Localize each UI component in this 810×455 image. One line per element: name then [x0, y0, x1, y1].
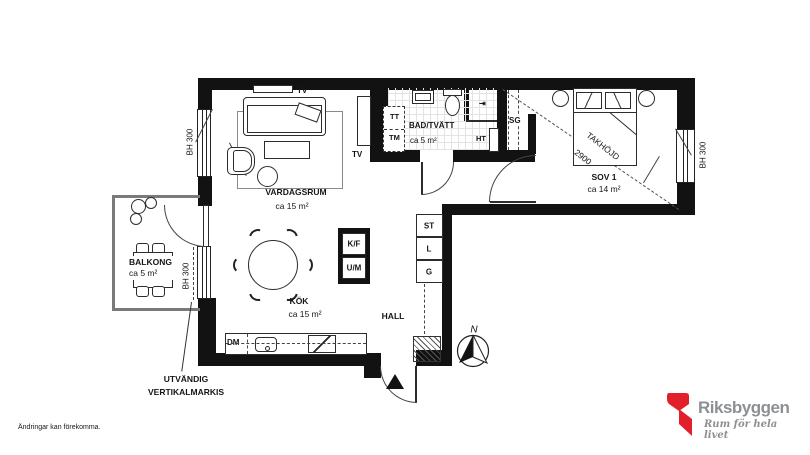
kf-label: K/F — [348, 240, 361, 249]
side-table-round — [257, 166, 278, 187]
bh-label-kitchen: BH 300 — [182, 262, 191, 291]
markis-note-line2: VERTIKALMARKIS — [132, 386, 240, 399]
room-name-vardagsrum: VARDAGSRUM — [265, 187, 326, 197]
bed-pillow — [605, 92, 631, 109]
bedside-stool — [638, 90, 655, 107]
st-label: ST — [424, 222, 434, 231]
balcony-plant-pot — [130, 213, 142, 225]
bh-label-living: BH 300 — [186, 129, 195, 156]
markis-leader-line — [181, 302, 192, 371]
sg-label: SG — [509, 116, 521, 125]
shower-drain-arrow: ⇥ — [479, 99, 486, 108]
wall-bedroom-right-bottom — [677, 183, 695, 215]
dining-chair — [295, 256, 313, 274]
room-area-balkong: ca 5 m² — [129, 268, 172, 279]
counter-divider — [247, 334, 248, 354]
room-name-bad: BAD/TVÄTT — [409, 121, 454, 130]
room-name-balkong: BALKONG — [129, 257, 172, 268]
tt-label: TT — [390, 112, 399, 121]
counter-centerline — [226, 343, 366, 344]
g-label: G — [426, 268, 432, 277]
tv-bench-right — [357, 96, 371, 146]
stove — [308, 335, 336, 353]
hall-radiator — [413, 336, 441, 362]
bedroom-window — [676, 129, 695, 183]
um-label: U/M — [347, 264, 362, 273]
tv-bench-top — [253, 85, 293, 93]
balcony-chair — [136, 286, 149, 297]
toilet-bowl — [445, 95, 460, 116]
wall-bedroom-bottom — [442, 204, 695, 215]
room-area-bad: ca 5 m² — [410, 136, 437, 145]
bed-blanket-line — [573, 112, 637, 113]
room-name-kok: KÖK — [290, 296, 309, 306]
wall-bedroom-right-top — [677, 78, 695, 129]
balcony-plant-pot — [145, 197, 157, 209]
living-room-window — [197, 109, 211, 177]
bathroom-door-swing — [421, 162, 454, 195]
l-label: L — [427, 245, 432, 254]
room-area-sov: ca 14 m² — [587, 184, 620, 194]
towel-radiator — [489, 128, 499, 152]
bathroom-sink — [412, 90, 434, 104]
riksbyggen-logo-mark — [666, 392, 696, 440]
wall-left-mid — [198, 176, 212, 206]
bh-label-bedroom: BH 300 — [699, 142, 708, 169]
hall-centerline — [424, 284, 425, 334]
shower-edge — [466, 120, 497, 122]
riksbyggen-logo-tagline: Rum för hela livet — [704, 419, 802, 441]
coffee-table — [264, 141, 310, 159]
disclaimer-text: Ändringar kan förekomma. — [18, 424, 100, 431]
markis-dashed-line — [193, 247, 194, 300]
tm-label: TM — [389, 133, 400, 142]
markis-note-line1: UTVÄNDIG — [132, 373, 240, 386]
compass-icon — [449, 328, 495, 374]
tv-label-top: TV — [297, 86, 307, 95]
armchair — [227, 147, 255, 175]
kitchen-sink — [255, 337, 277, 352]
floorplan-canvas: BALKONG ca 5 m² BH 300 BH 300 TV TV VARD… — [0, 0, 810, 455]
balcony-chair — [152, 286, 165, 297]
room-name-sov: SOV 1 — [591, 172, 616, 182]
wall-entry-corner — [364, 353, 381, 378]
balcony-label-group: BALKONG ca 5 m² — [127, 256, 174, 280]
bed-pillow — [576, 92, 602, 109]
wall-sg-right-stub — [528, 114, 536, 154]
kitchen-window — [197, 246, 211, 299]
wall-left-upper — [198, 78, 212, 110]
ht-label: HT — [476, 134, 486, 143]
bedroom-door-swing — [489, 155, 536, 202]
dining-chair — [233, 256, 251, 274]
room-area-vardagsrum: ca 15 m² — [275, 201, 308, 211]
room-name-hall: HALL — [382, 311, 405, 321]
markis-note: UTVÄNDIG VERTIKALMARKIS — [132, 373, 240, 399]
riksbyggen-logo-name: Riksbyggen — [698, 398, 789, 418]
tv-label-right: TV — [352, 150, 362, 159]
bedside-stool — [552, 90, 569, 107]
room-area-kok: ca 15 m² — [288, 309, 321, 319]
balcony-plant-pot — [131, 199, 146, 214]
window-casement-line — [643, 156, 660, 183]
riksbyggen-logo: Riksbyggen Rum för hela livet — [662, 390, 802, 442]
entry-arrow — [386, 374, 404, 389]
